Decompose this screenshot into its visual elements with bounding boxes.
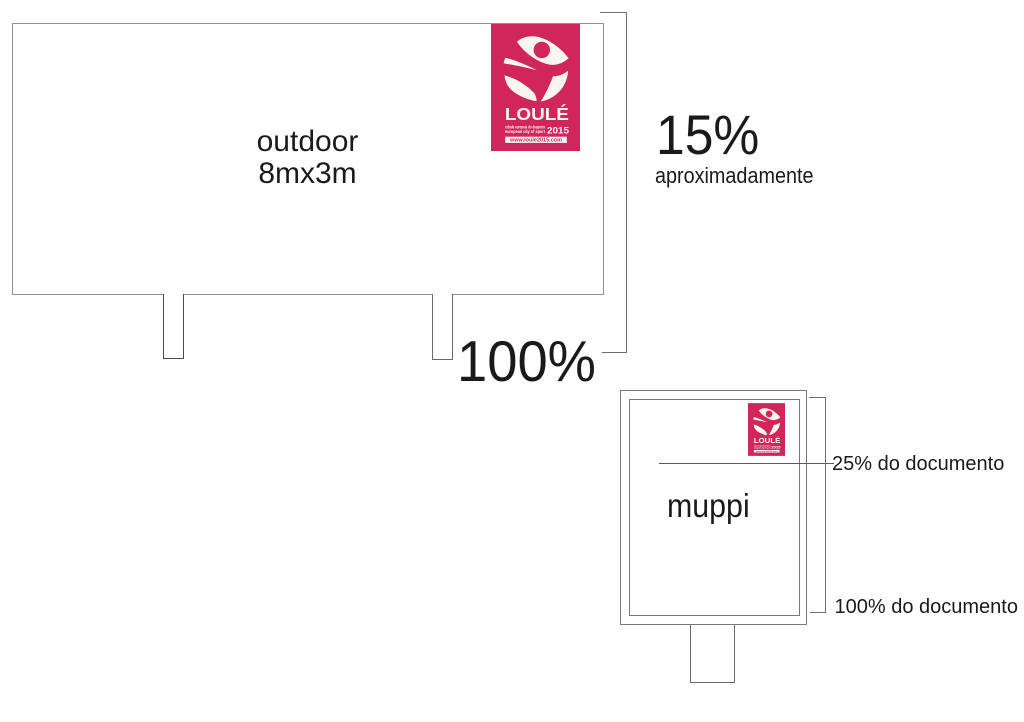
svg-text:2015: 2015 (547, 126, 570, 137)
svg-text:www.loule2015.com: www.loule2015.com (509, 138, 563, 144)
svg-text:LOULÉ: LOULÉ (505, 103, 569, 124)
svg-text:european city of sport: european city of sport (505, 129, 546, 134)
svg-text:2015: 2015 (771, 445, 781, 450)
svg-text:LOULÉ: LOULÉ (754, 436, 781, 445)
svg-text:www.loule2015.com: www.loule2015.com (756, 451, 778, 453)
